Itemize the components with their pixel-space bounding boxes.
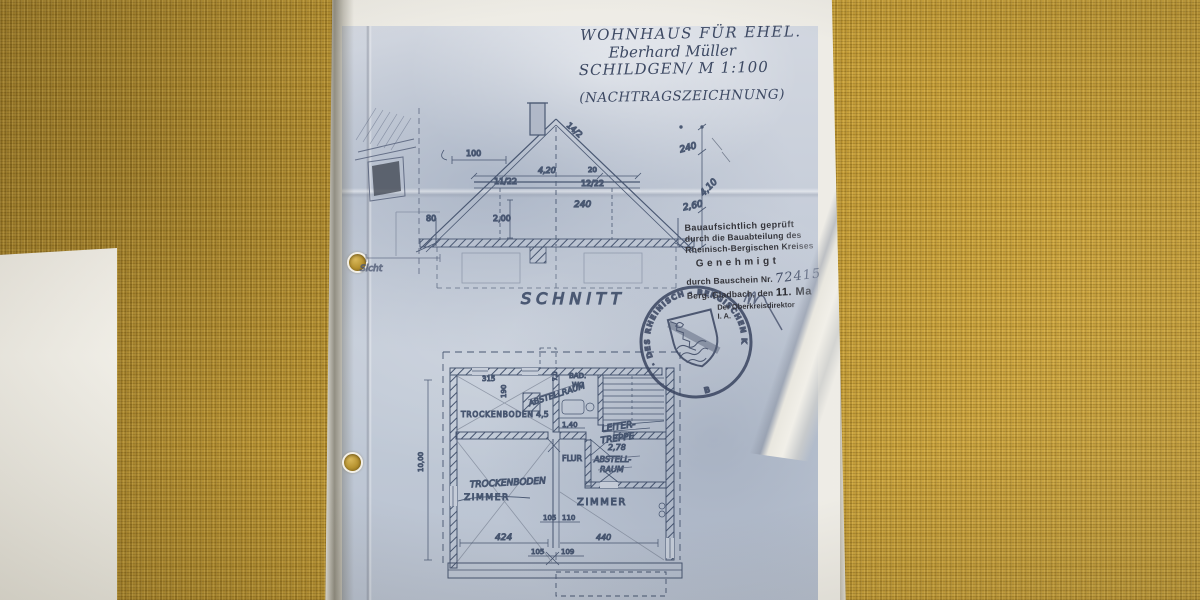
stamp-genehmigt: Genehmigt [696, 253, 848, 271]
punch-hole-top [347, 252, 368, 273]
title-line3: SCHILDGEN/ M 1:100 [579, 58, 769, 79]
approval-stamp: Bauaufsichtlich geprüft durch die Bauabt… [684, 217, 849, 322]
stamp-date-value: 11. Ma [776, 286, 812, 299]
photo-scene: Sicht [0, 0, 1200, 600]
punch-hole-bottom [342, 452, 363, 473]
stamp-date-label: Berg. Gladbach, den [687, 288, 774, 301]
title-line1: WOHNHAUS FÜR EHEL. [580, 22, 802, 44]
stamp-bauschein-number: 72415 [774, 266, 822, 288]
left-paper-sheet [0, 248, 117, 600]
stamp-bauschein-label: durch Bauschein Nr. [686, 274, 773, 287]
